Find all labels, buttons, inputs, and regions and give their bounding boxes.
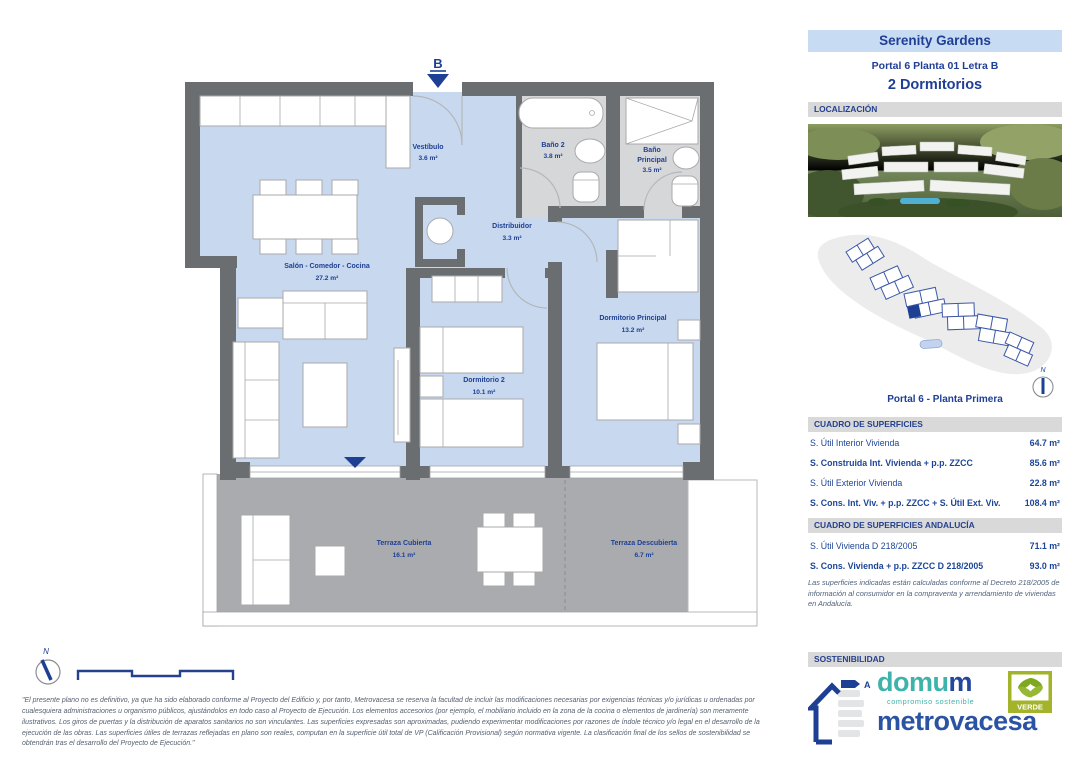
verde-badge-icon: VERDE bbox=[1008, 671, 1052, 713]
svg-text:Distribuidor: Distribuidor bbox=[492, 223, 532, 230]
verde-label: VERDE bbox=[1017, 703, 1043, 712]
svg-text:Baño 2: Baño 2 bbox=[541, 142, 564, 149]
svg-text:16.1 m²: 16.1 m² bbox=[393, 552, 417, 559]
unit-type: 2 Dormitorios bbox=[808, 77, 1062, 93]
entrance-arrow-icon bbox=[427, 74, 449, 88]
section-header-sostenibilidad: SOSTENIBILIDAD bbox=[808, 652, 1062, 667]
highlighted-unit bbox=[907, 305, 921, 319]
section-header-localizacion: LOCALIZACIÓN bbox=[808, 102, 1062, 117]
svg-text:Terraza Descubierta: Terraza Descubierta bbox=[611, 540, 678, 547]
windows bbox=[250, 466, 683, 478]
svg-text:6.7 m²: 6.7 m² bbox=[634, 552, 654, 559]
siteplan-caption: Portal 6 - Planta Primera bbox=[887, 394, 1003, 405]
entrance-label: B bbox=[433, 56, 442, 71]
svg-text:Dormitorio 2: Dormitorio 2 bbox=[463, 377, 505, 384]
project-title: Serenity Gardens bbox=[808, 30, 1062, 52]
section-key-icon bbox=[78, 671, 233, 680]
location-aerial-photo bbox=[808, 124, 1062, 217]
section-header-superficies-andalucia: CUADRO DE SUPERFICIES ANDALUCÍA bbox=[808, 518, 1062, 533]
surfaces-table: S. Útil Interior Vivienda64.7 m² S. Cons… bbox=[808, 433, 1062, 513]
entrance-marker: B bbox=[427, 56, 449, 88]
svg-text:N: N bbox=[43, 647, 49, 656]
pool-shape bbox=[920, 339, 943, 349]
siteplan-north-compass-icon: N bbox=[1033, 367, 1053, 397]
disclaimer-text: "El presente plano no es definitivo, ya … bbox=[22, 696, 767, 750]
svg-text:3.3 m²: 3.3 m² bbox=[502, 235, 522, 242]
table-row: S. Construida Int. Vivienda + p.p. ZZCC8… bbox=[808, 453, 1062, 473]
energy-rating-label: A bbox=[864, 680, 871, 690]
svg-text:27.2 m²: 27.2 m² bbox=[316, 275, 340, 282]
floor-plan: B Vestíbulo3.6 m² Salón - Comedor - Coci… bbox=[0, 0, 790, 700]
andalucia-note: Las superficies indicadas están calculad… bbox=[808, 578, 1062, 610]
table-row: S. Cons. Int. Viv. + p.p. ZZCC + S. Útil… bbox=[808, 493, 1062, 513]
svg-text:Vestíbulo: Vestíbulo bbox=[412, 144, 443, 151]
svg-text:Salón - Comedor - Cocina: Salón - Comedor - Cocina bbox=[284, 263, 370, 270]
unit-reference: Portal 6 Planta 01 Letra B bbox=[808, 60, 1062, 72]
table-row: S. Útil Vivienda D 218/200571.1 m² bbox=[808, 536, 1062, 556]
table-row: S. Útil Interior Vivienda64.7 m² bbox=[808, 433, 1062, 453]
section-header-superficies: CUADRO DE SUPERFICIES bbox=[808, 417, 1062, 432]
svg-text:N: N bbox=[1040, 367, 1046, 374]
svg-text:Terraza Cubierta: Terraza Cubierta bbox=[377, 540, 432, 547]
site-plan: N Portal 6 - Planta Primera bbox=[808, 222, 1062, 412]
svg-text:3.5 m²: 3.5 m² bbox=[642, 167, 662, 174]
sidebar: Serenity Gardens Portal 6 Planta 01 Letr… bbox=[808, 0, 1062, 764]
energy-house-icon: A bbox=[808, 672, 872, 746]
svg-text:10.1 m²: 10.1 m² bbox=[473, 389, 497, 396]
andalucia-table: S. Útil Vivienda D 218/200571.1 m² S. Co… bbox=[808, 536, 1062, 576]
svg-text:3.8 m²: 3.8 m² bbox=[543, 153, 563, 160]
svg-text:Principal: Principal bbox=[637, 157, 667, 164]
north-compass-icon: N bbox=[36, 647, 60, 684]
svg-text:13.2 m²: 13.2 m² bbox=[622, 327, 646, 334]
svg-text:Dormitorio Principal: Dormitorio Principal bbox=[599, 315, 666, 322]
floorplan-sheet: B Vestíbulo3.6 m² Salón - Comedor - Coci… bbox=[0, 0, 1080, 764]
table-row: S. Cons. Vivienda + p.p. ZZCC D 218/2005… bbox=[808, 556, 1062, 576]
svg-text:3.6 m²: 3.6 m² bbox=[418, 155, 438, 162]
table-row: S. Útil Exterior Vivienda22.8 m² bbox=[808, 473, 1062, 493]
svg-text:Baño: Baño bbox=[643, 147, 661, 154]
